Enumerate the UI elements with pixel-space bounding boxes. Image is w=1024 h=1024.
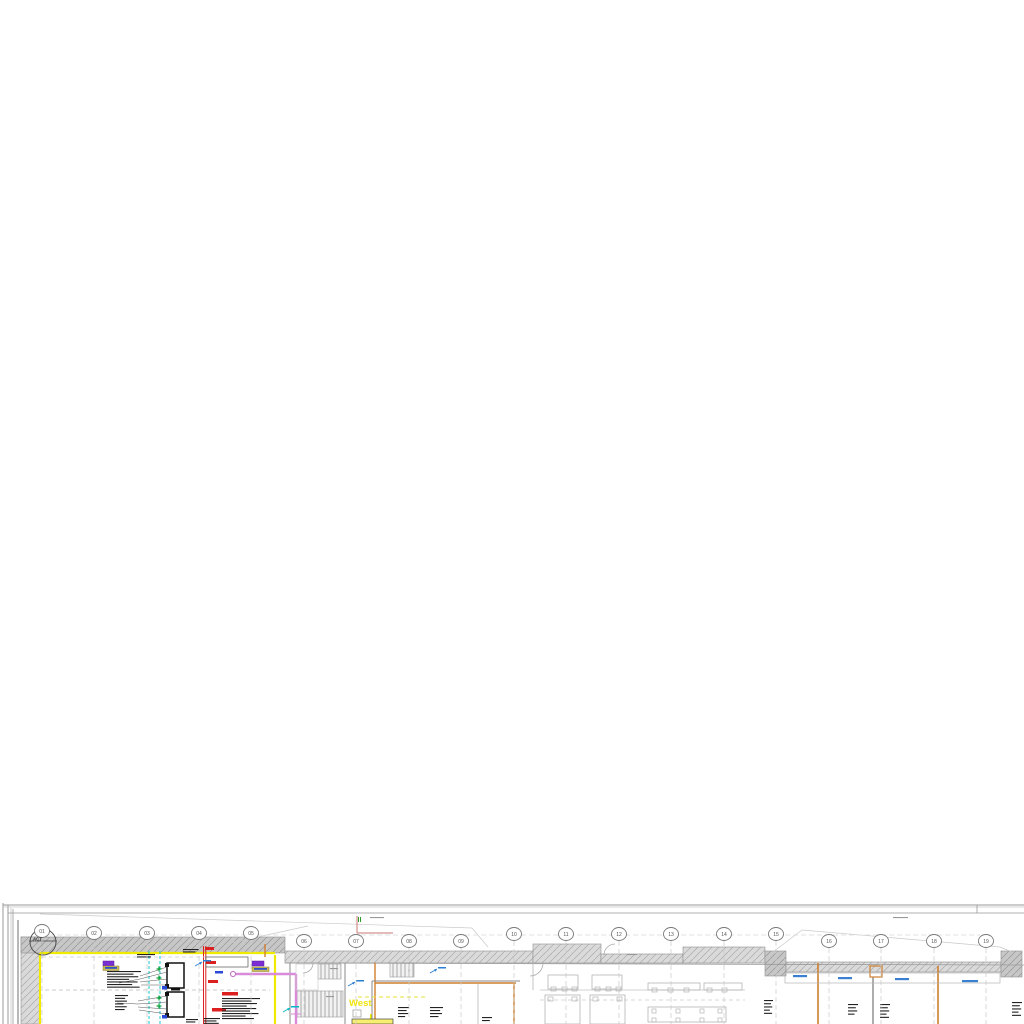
leader-line xyxy=(138,1002,167,1004)
grid-bubble-label: 08 xyxy=(406,939,412,945)
door-swing-arc xyxy=(604,944,615,955)
micro-text-block xyxy=(137,956,151,957)
micro-text-block xyxy=(848,1014,855,1015)
micro-text-block xyxy=(430,1016,438,1017)
micro-text-block xyxy=(398,1010,407,1011)
micro-text-block xyxy=(222,1018,254,1019)
micro-text-block xyxy=(222,998,260,999)
drawing-rect xyxy=(171,989,180,991)
flow-arrow-label xyxy=(356,980,364,982)
grid-bubble-label: 09 xyxy=(458,939,464,945)
micro-text-block xyxy=(115,1006,127,1007)
drawing-rect xyxy=(700,1018,704,1022)
stair-hatch xyxy=(318,964,341,979)
grid-bubble-label: 03 xyxy=(144,931,150,937)
micro-text-block xyxy=(204,1020,216,1021)
micro-text-block xyxy=(430,1010,440,1011)
generated-drawing-layer: 01020304050607080910111213141516171819 xyxy=(3,903,1024,1024)
drawing-rect xyxy=(648,1007,726,1022)
drawing-rect xyxy=(296,964,318,990)
micro-text-block xyxy=(186,1019,198,1020)
leader-line xyxy=(140,967,167,976)
micro-text-block xyxy=(222,1001,252,1002)
drawing-rect xyxy=(352,1019,393,1024)
micro-text-block xyxy=(107,971,141,972)
grid-bubble-label: 05 xyxy=(248,931,254,937)
wall-hatch xyxy=(765,951,786,976)
flow-arrow-label xyxy=(203,960,211,962)
drawing-rect xyxy=(165,992,169,996)
door-swing-arc xyxy=(530,963,543,976)
micro-text-block xyxy=(848,1010,857,1011)
annotation-tag xyxy=(222,992,238,996)
drawing-rect xyxy=(167,963,184,988)
micro-text-block xyxy=(186,1021,195,1022)
micro-text-block xyxy=(764,1003,771,1004)
floor-plan-canvas: 01020304050607080910111213141516171819 A… xyxy=(0,0,1024,1024)
grid-bubble-label: 11 xyxy=(563,932,568,938)
micro-text-block xyxy=(222,1016,246,1017)
grid-bubble-label: 19 xyxy=(983,939,989,945)
micro-text-block xyxy=(222,1006,247,1007)
drawing-rect xyxy=(165,963,169,967)
drawing-rect xyxy=(700,1009,704,1013)
micro-text-block xyxy=(204,1018,220,1019)
grid-bubble-label: 17 xyxy=(878,939,884,945)
micro-text-block xyxy=(430,1007,443,1008)
micro-text-block xyxy=(222,1013,258,1014)
micro-text-block xyxy=(370,917,384,918)
drawing-rect xyxy=(648,983,700,990)
drawing-rect xyxy=(676,1018,680,1022)
drawing-rect xyxy=(590,995,625,1024)
grid-bubble-label: 06 xyxy=(301,939,307,945)
reference-circle xyxy=(231,972,236,977)
micro-text-block xyxy=(107,976,138,977)
micro-text-block xyxy=(482,1020,490,1021)
micro-text-block xyxy=(183,949,199,950)
micro-text-block xyxy=(183,951,195,952)
drawing-rect xyxy=(103,961,114,966)
grid-bubble-label: 14 xyxy=(721,932,727,938)
drawing-rect xyxy=(572,997,577,1001)
micro-text-block xyxy=(764,1013,772,1014)
annotation-tag xyxy=(205,947,214,950)
grid-bubble-label: 07 xyxy=(353,939,359,945)
micro-text-block xyxy=(893,917,908,918)
micro-text-block xyxy=(115,1009,125,1010)
drawing-rect xyxy=(718,1018,722,1022)
micro-text-block xyxy=(1012,1005,1020,1006)
annotation-tag xyxy=(208,980,218,983)
leader-line xyxy=(138,1007,167,1009)
door-swing-arc xyxy=(303,963,313,973)
drawing-rect xyxy=(652,1018,656,1022)
drawing-sheet: 01020304050607080910111213141516171819 A… xyxy=(0,0,1024,1024)
micro-text-block xyxy=(107,974,134,975)
drawing-rect xyxy=(162,986,167,990)
drawing-line xyxy=(472,928,488,947)
drawing-line xyxy=(40,914,472,928)
micro-text-block xyxy=(880,1010,889,1011)
micro-text-block xyxy=(115,1001,127,1002)
micro-text-block xyxy=(1012,1012,1019,1013)
micro-text-block xyxy=(764,1000,773,1001)
annotation-tag xyxy=(215,971,223,974)
annotation-tag xyxy=(895,978,909,980)
micro-text-block xyxy=(107,984,132,985)
micro-text-block xyxy=(326,996,334,997)
drawing-rect xyxy=(545,995,580,1024)
drawing-rect xyxy=(548,997,553,1001)
micro-text-block xyxy=(107,987,140,988)
grid-bubble-label: 18 xyxy=(931,939,937,945)
micro-text-block xyxy=(1012,1015,1021,1016)
drawing-rect xyxy=(676,1009,680,1013)
micro-text-block xyxy=(107,979,129,980)
micro-text-block xyxy=(398,1016,405,1017)
micro-text-block xyxy=(430,1013,442,1014)
annotation-tag xyxy=(793,975,807,977)
micro-text-block xyxy=(222,1011,250,1012)
micro-text-block xyxy=(627,954,637,955)
micro-text-block xyxy=(115,1003,123,1004)
leader-line xyxy=(140,979,167,982)
drawing-rect xyxy=(252,961,264,966)
micro-text-block xyxy=(764,1006,772,1007)
grid-bubble-label: 04 xyxy=(196,931,202,937)
micro-text-block xyxy=(1012,1002,1022,1003)
leader-line xyxy=(139,1010,167,1014)
micro-text-block xyxy=(222,1003,257,1004)
grid-bubble-label: 10 xyxy=(511,932,517,938)
micro-text-block xyxy=(764,1010,770,1011)
leader-line xyxy=(140,972,167,979)
drawing-rect xyxy=(617,997,622,1001)
micro-text-block xyxy=(107,981,138,982)
wall-hatch xyxy=(1001,951,1022,977)
drawing-rect xyxy=(593,997,598,1001)
annotation-tag xyxy=(254,968,267,970)
micro-text-block xyxy=(137,954,155,955)
drawing-rect xyxy=(162,1015,167,1019)
grid-bubble-label: 02 xyxy=(91,931,97,937)
drawing-rect xyxy=(718,1009,722,1013)
drawing-rect xyxy=(353,1010,361,1017)
stair-hatch xyxy=(296,991,343,1017)
grid-bubble-label: 16 xyxy=(826,939,832,945)
drawing-rect xyxy=(167,992,184,1017)
annotation-tag xyxy=(962,980,978,982)
grid-bubble-label: 12 xyxy=(616,932,622,938)
micro-text-block xyxy=(848,1004,858,1005)
micro-text-block xyxy=(1012,1008,1021,1009)
annotation-tag xyxy=(838,977,852,979)
flow-arrow-label xyxy=(438,967,446,969)
flow-arrow-label xyxy=(291,1006,299,1008)
annotation-tag xyxy=(105,967,117,969)
micro-text-block xyxy=(880,1004,890,1005)
micro-text-block xyxy=(330,968,338,969)
drawing-rect xyxy=(704,983,742,990)
micro-text-block xyxy=(482,1017,492,1018)
micro-text-block xyxy=(115,998,125,999)
micro-text-block xyxy=(115,995,128,996)
micro-text-block xyxy=(398,1013,408,1014)
stair-hatch xyxy=(390,963,414,977)
grid-bubble-label: 15 xyxy=(773,932,779,938)
detail-ref-label: ACT xyxy=(33,937,42,942)
micro-text-block xyxy=(398,1007,409,1008)
grid-bubble-label: 13 xyxy=(668,932,674,938)
drawing-rect xyxy=(652,1009,656,1013)
wall-hatch xyxy=(533,944,601,963)
grid-bubble-label: 01 xyxy=(39,929,45,935)
micro-text-block xyxy=(848,1007,856,1008)
leader-line xyxy=(138,996,167,1001)
room-name-west: West xyxy=(349,998,372,1009)
